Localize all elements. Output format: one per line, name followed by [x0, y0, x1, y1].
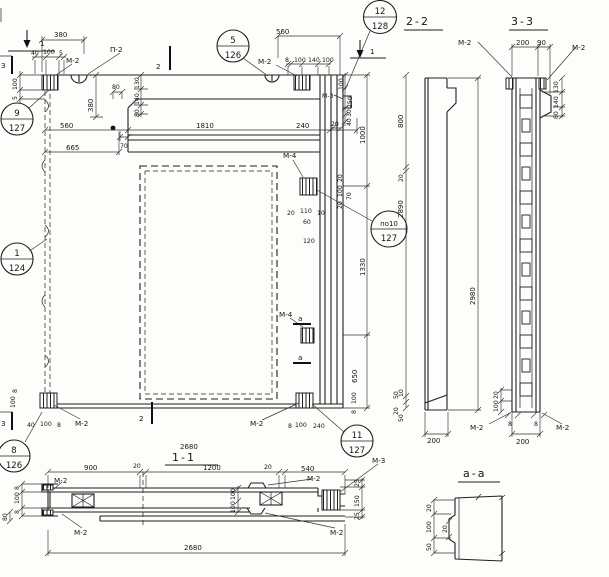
svg-text:127: 127 [9, 124, 25, 134]
svg-text:8: 8 [11, 446, 16, 456]
dim-900: 900 [84, 464, 97, 472]
svg-text:128: 128 [372, 22, 388, 32]
dim-110: 110 [300, 208, 312, 215]
svg-text:127: 127 [349, 446, 365, 456]
lifting-loop-left [71, 75, 87, 83]
dim-250: 250 [347, 96, 354, 108]
dim-20: 20 [133, 463, 141, 470]
dim-1810: 1810 [196, 122, 214, 130]
lintel-beam [128, 99, 320, 152]
fixture-box [72, 494, 94, 507]
dim-140: 140 [553, 96, 560, 108]
section-title-a-a: а-а [463, 467, 486, 480]
dim-20: 20 [264, 464, 272, 471]
mark-m2: М-2 [258, 57, 271, 66]
dim-100: 100 [10, 396, 17, 408]
cut-label-2: 2 [156, 62, 161, 71]
dim-2980: 2980 [469, 287, 477, 305]
dim-80: 80 [134, 109, 141, 117]
dim-100: 100 [230, 488, 237, 500]
drawing-sheet: 1 1 2 2 3 3 а а 2-2 3-3 1-1 а-а 9 127 [0, 0, 609, 577]
dim-60: 60 [303, 219, 311, 226]
mark-p2: П-2 [110, 45, 123, 54]
dim-30: 30 [346, 109, 353, 117]
embed-part-m2-bottom-left [40, 393, 57, 408]
dim-8: 8 [534, 421, 538, 428]
dim-380: 380 [54, 31, 67, 39]
svg-text:126: 126 [6, 461, 22, 471]
dim-140: 140 [134, 93, 141, 105]
dim-50: 50 [426, 543, 433, 551]
svg-text:11: 11 [352, 431, 363, 441]
dim-100: 100 [295, 422, 307, 429]
section-a-a-view [449, 494, 505, 561]
svg-text:126: 126 [225, 51, 241, 61]
dim-200: 200 [516, 39, 529, 47]
dim-10: 10 [317, 210, 325, 217]
dim-100: 100 [43, 49, 55, 56]
mark-m2: М-2 [470, 423, 483, 432]
lifting-loop-right [265, 75, 279, 82]
dim-8: 8 [57, 422, 61, 429]
dim-540: 540 [301, 465, 314, 473]
cut-label-a: а [298, 314, 302, 323]
embed-part-m2-33-right [539, 78, 546, 89]
mark-m2: М-2 [250, 419, 263, 428]
mark-m2: М-2 [572, 43, 585, 52]
fixture-box [260, 492, 282, 505]
dim-240: 240 [313, 423, 325, 430]
svg-text:127: 127 [381, 234, 397, 244]
mark-m3: М-3 [372, 456, 385, 465]
section-title-1-1: 1-1 [172, 451, 196, 464]
dim-5: 5 [59, 50, 63, 57]
dim-20: 20 [337, 174, 344, 182]
dim-40: 40 [31, 50, 39, 57]
embed-part-m2-top-right [294, 75, 310, 90]
dim-80: 80 [112, 84, 120, 91]
mark-m2: М-2 [75, 419, 88, 428]
dim-560: 560 [276, 28, 289, 36]
dim-20: 20 [393, 407, 400, 415]
section-title-3-3: 3-3 [511, 15, 535, 28]
dim-100: 100 [338, 78, 345, 90]
cut-label-3: 3 [1, 419, 6, 428]
dim-20: 20 [398, 174, 405, 182]
svg-text:1: 1 [14, 249, 19, 259]
dim-200: 200 [516, 438, 529, 446]
cut-label-3: 3 [1, 61, 6, 70]
dim-100: 100 [351, 392, 358, 404]
mark-m2: М-2 [66, 56, 79, 65]
dim-2890: 2890 [397, 200, 405, 218]
dim-8: 8 [508, 421, 512, 428]
cut-label-2: 2 [139, 414, 144, 423]
svg-text:124: 124 [9, 264, 25, 274]
dim-70: 70 [346, 192, 353, 200]
dim-100: 100 [493, 400, 500, 412]
shear-keys [520, 95, 532, 396]
dim-20: 20 [331, 121, 339, 128]
mark-m2: М-2 [556, 423, 569, 432]
dim-8: 8 [288, 423, 292, 430]
dim-25: 25 [354, 512, 361, 520]
dim-2680: 2680 [180, 443, 198, 451]
dim-120: 120 [303, 238, 315, 245]
dim-8: 8 [14, 486, 21, 490]
leader-lines [25, 31, 576, 528]
window-opening [140, 166, 277, 399]
svg-text:12: 12 [375, 7, 386, 17]
embed-part-m2-bottom-right [296, 393, 313, 408]
dim-20: 20 [493, 391, 500, 399]
dim-100: 100 [12, 78, 19, 90]
embed-part-m4-lower [301, 328, 314, 343]
mark-m4: М-4 [283, 151, 297, 160]
dim-1000: 1000 [359, 126, 367, 144]
mark-m2: М-2 [54, 476, 67, 485]
dim-665: 665 [66, 144, 79, 152]
dim-380-v: 380 [87, 99, 95, 112]
dim-130: 130 [553, 81, 560, 93]
dim-100: 100 [14, 492, 21, 504]
detail-callout: 1 124 [1, 243, 33, 275]
anchor-m3 [322, 490, 340, 510]
detail-callout: 8 126 [0, 440, 30, 472]
embed-part-m2-33-left [506, 78, 513, 89]
svg-text:по10: по10 [380, 220, 398, 228]
dim-8: 8 [285, 57, 289, 64]
dim-100: 100 [322, 57, 334, 64]
edge-tongue-profile [449, 498, 455, 559]
dim-140: 140 [308, 57, 320, 64]
dim-100: 100 [40, 421, 52, 428]
mark-m2: М-2 [458, 38, 471, 47]
dim-200: 200 [427, 437, 440, 445]
svg-text:5: 5 [230, 36, 235, 46]
console-bracket [540, 90, 551, 118]
dim-100: 100 [337, 185, 344, 197]
cut-arrow-down [357, 50, 364, 58]
section-2-2-view [425, 78, 456, 410]
dim-8: 8 [12, 389, 19, 393]
svg-text:9: 9 [14, 109, 19, 119]
embed-part-m2-top-left [42, 75, 58, 90]
mark-m3: М-3 [322, 93, 334, 100]
detail-callout: 9 127 [1, 103, 33, 135]
dim-240: 240 [296, 122, 309, 130]
dim-8: 8 [14, 510, 21, 514]
dim-40: 40 [27, 422, 35, 429]
detail-callout: 12 128 [364, 1, 397, 34]
dim-20: 20 [337, 201, 344, 209]
mark-m2: М-2 [307, 474, 320, 483]
dim-1200: 1200 [203, 464, 221, 472]
dim-150: 150 [354, 495, 361, 507]
dim-560: 560 [60, 122, 73, 130]
detail-callout: 11 127 [341, 425, 373, 457]
dim-800: 800 [397, 115, 405, 128]
section-3-3-view [506, 78, 551, 412]
mark-m2: М-2 [74, 528, 87, 537]
cut-label-a: а [298, 353, 302, 362]
dim-5: 5 [12, 96, 19, 100]
drawing-canvas: 1 1 2 2 3 3 а а 2-2 3-3 1-1 а-а 9 127 [0, 0, 609, 577]
dim-130: 130 [134, 77, 141, 89]
dim-40: 40 [346, 118, 353, 126]
dim-20: 20 [287, 210, 295, 217]
detail-callout: 5 126 [217, 30, 249, 62]
cut-label-1: 1 [370, 47, 375, 56]
dim-70: 70 [120, 143, 128, 150]
dim-100: 100 [426, 521, 433, 533]
section-title-2-2: 2-2 [406, 15, 430, 28]
dim-25: 25 [354, 479, 361, 487]
dim-2680: 2680 [184, 544, 202, 552]
dim-20: 20 [442, 525, 449, 533]
dim-100: 100 [230, 501, 237, 513]
dim-20: 20 [426, 504, 433, 512]
dim-100: 100 [294, 57, 306, 64]
dim-90: 90 [537, 39, 546, 47]
mark-m2: М-2 [330, 528, 343, 537]
embed-part-m4-upper [300, 178, 317, 195]
rebate-bump-bottom [247, 508, 265, 514]
dim-50: 50 [393, 391, 400, 399]
dim-80: 80 [553, 111, 560, 119]
rebate-bump-top [248, 483, 266, 488]
dim-650: 650 [351, 370, 359, 383]
dim-1330: 1330 [359, 258, 367, 276]
cut-arrow-down [24, 40, 31, 48]
dim-8: 8 [351, 410, 358, 414]
dim-80: 80 [2, 513, 9, 521]
cut-markers: 1 1 2 2 3 3 а а [0, 8, 386, 430]
cut-label-1: 1 [40, 39, 45, 48]
mark-m4: М-4 [279, 310, 293, 319]
